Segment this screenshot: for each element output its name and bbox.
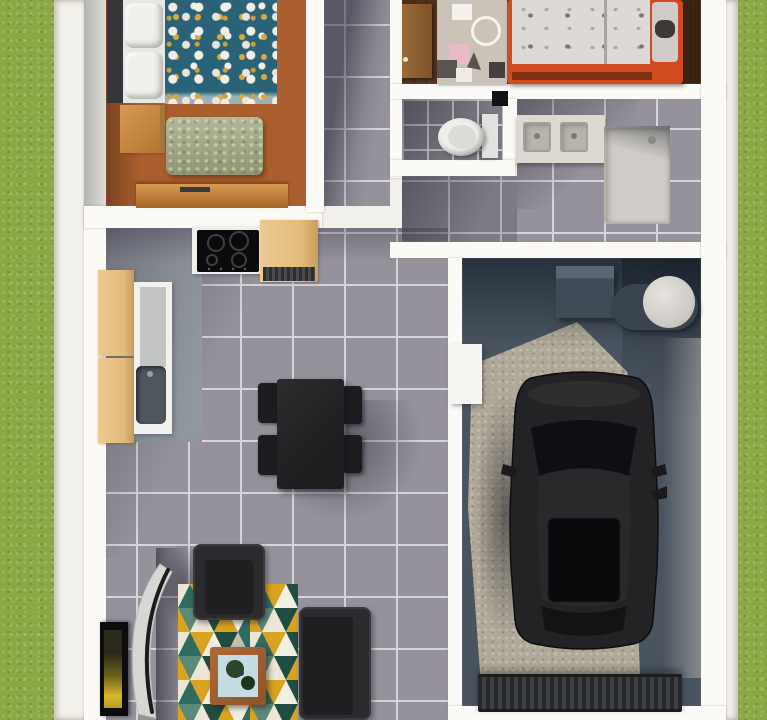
kids-room-door [402, 4, 432, 78]
table-decor [238, 670, 244, 676]
kids-play-mat [437, 0, 507, 84]
toilet-tank [482, 114, 498, 158]
wall-kids-bottom [390, 84, 726, 99]
dining-chair-4 [342, 435, 362, 473]
kitchen-cabinet-left-2 [98, 358, 134, 443]
wall-vent-box [492, 91, 508, 106]
floor-plan-render [0, 0, 767, 720]
garage-door-leaf [450, 344, 482, 404]
dining-chair-3 [342, 386, 362, 424]
mat-ornament [471, 16, 501, 46]
garage-wall-light [662, 338, 701, 678]
wall-wc-bottom [390, 160, 515, 176]
pillow-top [125, 3, 163, 48]
water-heater [556, 266, 614, 318]
dining-table [277, 379, 344, 489]
sofa-seat [303, 617, 353, 715]
hallway-floor [324, 0, 390, 206]
wall-hallway-left [306, 0, 324, 212]
bed-floral-duvet [165, 0, 277, 104]
plant-small [241, 676, 255, 690]
mat-card-gray [437, 60, 457, 78]
mat-card-white [452, 4, 472, 20]
toilet-seat [448, 125, 476, 149]
garage-doormat [478, 674, 682, 712]
pillow-bottom [125, 52, 163, 99]
shower-tray [604, 126, 670, 224]
faucet-left [534, 133, 540, 139]
grass-left [0, 0, 54, 720]
cabinet-vent-grill [263, 267, 315, 281]
mat-card-white2 [456, 68, 472, 82]
door-handle [403, 57, 408, 62]
kitchen-counter-inset [140, 287, 166, 367]
kids-bed-duvet [512, 0, 650, 64]
kids-pillow-print [655, 20, 675, 38]
faucet-right [571, 133, 577, 139]
mat-card-dark [489, 62, 505, 78]
tv-screen [104, 630, 122, 708]
boiler-tank [643, 276, 695, 328]
ottoman [166, 117, 263, 175]
wall-exterior-right [701, 0, 726, 720]
grass-right [737, 0, 767, 720]
mat-doodle [467, 52, 481, 70]
shower-drain [648, 136, 656, 144]
dresser [136, 184, 288, 208]
wall-garage-top [390, 242, 726, 258]
kids-bed-shadow [512, 72, 652, 80]
wall-wc-right [503, 99, 517, 164]
nightstand [120, 105, 165, 153]
armchair-seat [205, 560, 253, 614]
bed-headboard [107, 0, 123, 103]
kitchen-faucet [147, 371, 153, 377]
cooktop [197, 230, 259, 272]
wall-garage-left [448, 258, 462, 708]
kitchen-cabinet-left-1 [98, 270, 134, 356]
car [501, 368, 667, 654]
kids-duvet-fold [604, 0, 607, 64]
dresser-item [180, 187, 210, 192]
